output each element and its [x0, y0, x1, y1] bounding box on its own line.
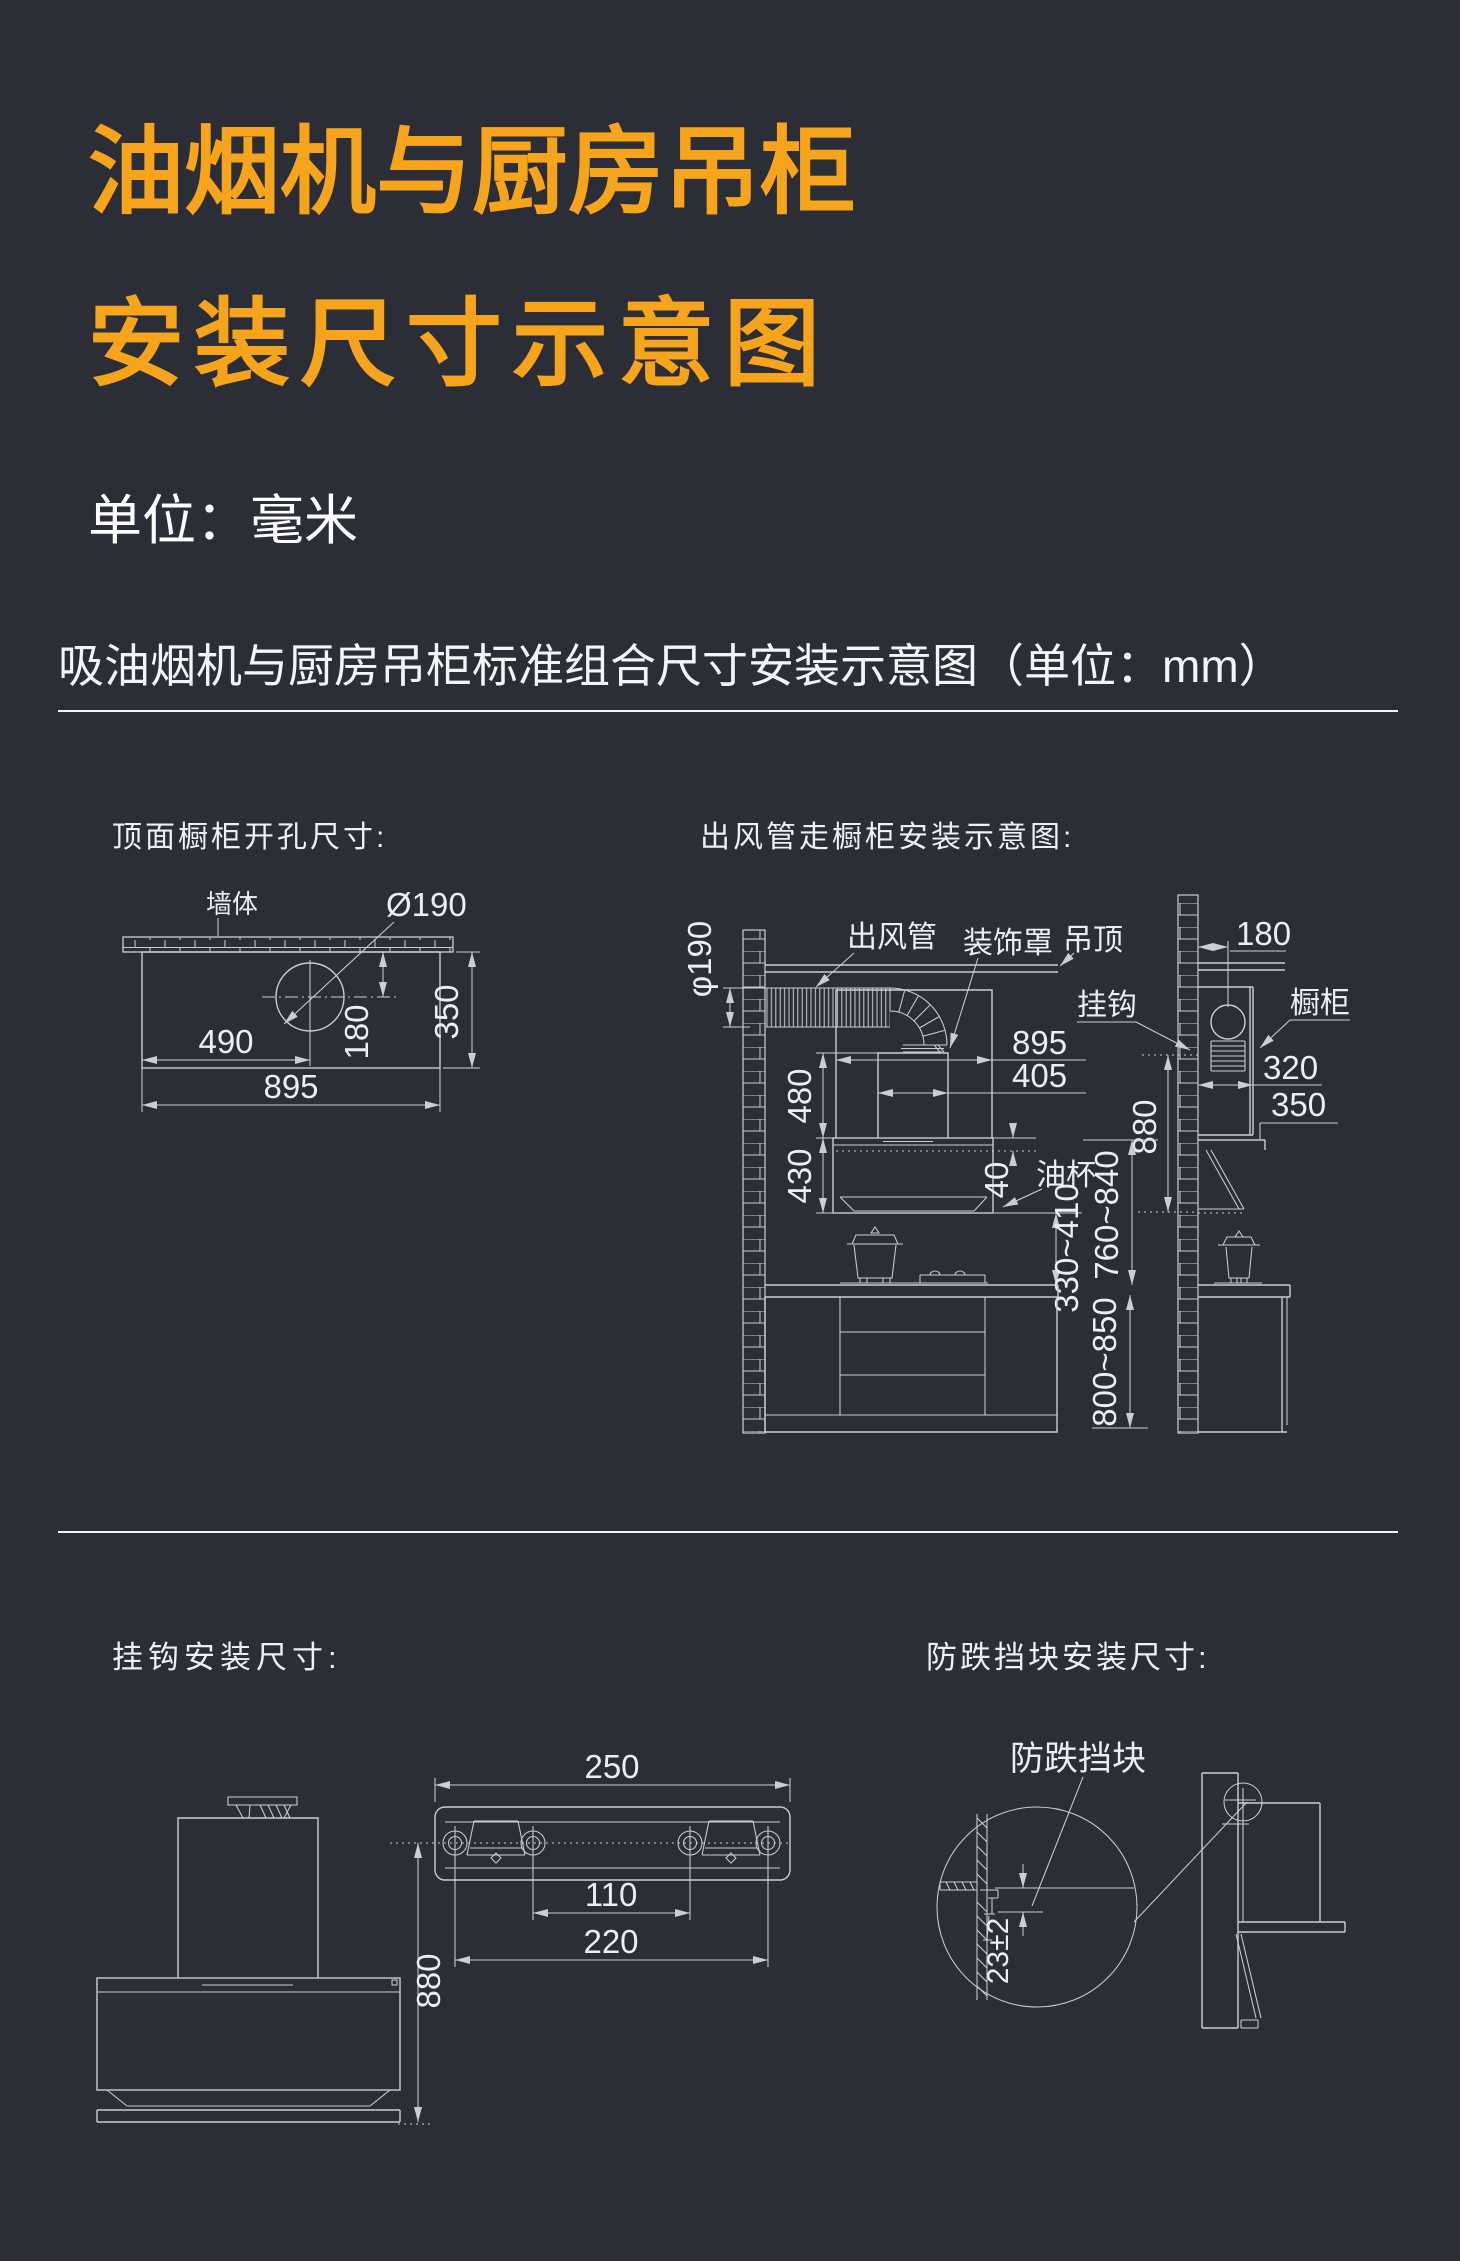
cover-label: 装饰罩 [963, 927, 1053, 960]
dim-110: 110 [585, 1876, 638, 1913]
ceiling-label: 吊顶 [1063, 924, 1123, 957]
dim-dia: φ190 [681, 921, 718, 997]
cabinet-label: 橱柜 [1290, 987, 1350, 1020]
ceiling-lines [765, 965, 1058, 972]
dim-350: 350 [1271, 1086, 1326, 1123]
page-title-line2: 安装尺寸示意图 [88, 297, 830, 393]
wall-front [743, 930, 765, 1433]
hood-elevation [97, 1797, 400, 2122]
hook-leader [1077, 1022, 1190, 1050]
section-title: 吸油烟机与厨房吊柜标准组合尺寸安装示意图（单位：mm） [58, 630, 1285, 696]
page: 油烟机与厨房吊柜 安装尺寸示意图 单位：毫米 吸油烟机与厨房吊柜标准组合尺寸安装… [0, 0, 1460, 2261]
wall-band [123, 937, 453, 952]
dim-250: 250 [584, 1748, 639, 1785]
duct-corrugation [766, 988, 890, 1027]
dim-350: 350 [428, 984, 465, 1039]
dim-430: 430 [781, 1148, 818, 1203]
dim-490: 490 [198, 1023, 253, 1060]
cabinet-side [1198, 987, 1253, 1135]
hook-cutouts [467, 1821, 760, 1863]
ceiling-side [1198, 963, 1285, 970]
block-diagram: 防跌挡块 23±2 [880, 1650, 1460, 2150]
dim-350-leader [1260, 1123, 1338, 1139]
dim-760-840: 760~840 [1088, 1150, 1125, 1279]
dim-320: 320 [1263, 1049, 1318, 1086]
dim-480: 480 [781, 1068, 818, 1123]
hole-diameter-label: Ø190 [386, 886, 467, 923]
dim-gap: 23±2 [982, 1918, 1015, 1985]
hook-diagram-label: 挂钩安装尺寸: [112, 1632, 342, 1677]
detail-contents: 23±2 [940, 1814, 1134, 2000]
dim-895: 895 [1012, 1024, 1067, 1061]
duct-elbow [890, 988, 947, 1052]
dim-180: 180 [1236, 915, 1291, 952]
block-leader [1032, 1777, 1083, 1906]
cutout-diagram: 墙体 Ø190 180 350 490 895 [60, 820, 500, 1150]
hood-side-view [1202, 1773, 1345, 2028]
detail-circle [937, 1807, 1137, 2007]
cooktop-side [1214, 1231, 1262, 1283]
dim-880: 880 [410, 1953, 447, 2008]
hood-side [1198, 1140, 1265, 1213]
counter-side [1198, 1285, 1290, 1432]
divider-bottom [58, 1531, 1398, 1533]
detail-connector [1134, 1802, 1247, 1922]
chimney-cover-front [878, 1053, 948, 1138]
dim-405: 405 [1012, 1057, 1067, 1094]
hook-plate [402, 1807, 790, 1880]
dim-220: 220 [583, 1923, 638, 1960]
cabinet-leader [1260, 1020, 1350, 1048]
dim-330-410: 330~410 [1048, 1183, 1085, 1312]
wall-label: 墙体 [206, 889, 258, 919]
counter-front [765, 1285, 1058, 1432]
dim-180: 180 [338, 1004, 375, 1059]
duct-label: 出风管 [847, 921, 937, 954]
duct-leader [816, 953, 854, 987]
page-title-line1: 油烟机与厨房吊柜 [88, 125, 856, 221]
duct-diagram: 吊顶 出风管 φ190 装饰罩 895 405 [690, 855, 1460, 1445]
dim-480-ext [816, 1053, 878, 1213]
hook-diagram: 880 250 110 [60, 1750, 820, 2150]
cooktop-front [840, 1227, 988, 1283]
hook-label: 挂钩 [1077, 989, 1137, 1022]
unit-note: 单位：毫米 [88, 476, 358, 555]
wall-side [1178, 895, 1198, 1433]
block-label: 防跌挡块 [1010, 1740, 1146, 1778]
duct-diagram-label: 出风管走橱柜安装示意图: [700, 812, 1074, 856]
dim-800-850: 800~850 [1086, 1297, 1123, 1426]
divider-top [58, 710, 1398, 712]
dim-895: 895 [263, 1068, 318, 1105]
dim-40: 40 [978, 1162, 1015, 1199]
